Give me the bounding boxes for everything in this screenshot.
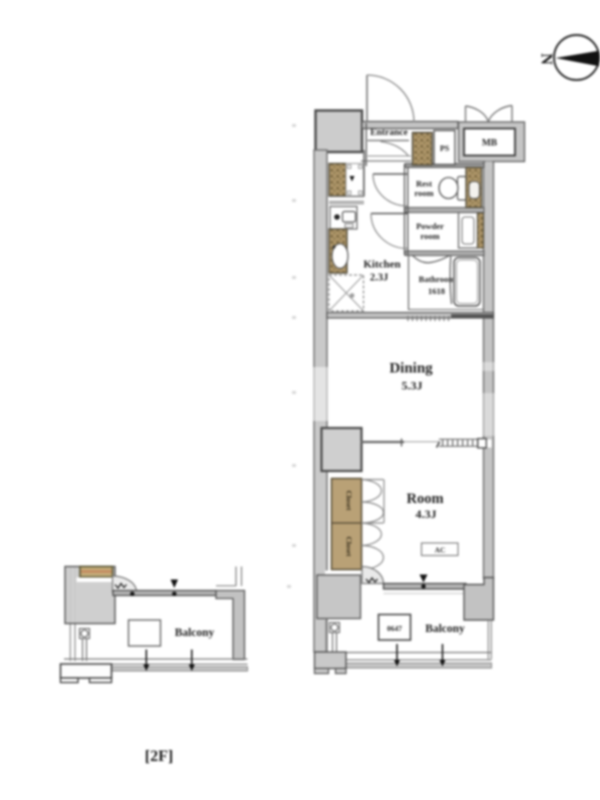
svg-text:5.3J: 5.3J (402, 379, 423, 393)
svg-text:4.3J: 4.3J (416, 507, 437, 521)
svg-text:1618: 1618 (428, 286, 445, 296)
svg-text:Dining: Dining (389, 361, 433, 377)
svg-text:Kitchen: Kitchen (363, 259, 400, 271)
svg-text:Rest: Rest (416, 179, 432, 189)
svg-text:room: room (420, 231, 439, 241)
svg-text:Room: Room (406, 491, 443, 507)
svg-text:Entrance: Entrance (370, 128, 407, 138)
svg-text:PS: PS (440, 144, 450, 153)
svg-text:room: room (414, 188, 433, 198)
svg-text:Closet: Closet (345, 491, 354, 511)
svg-text:[2F]: [2F] (145, 748, 173, 765)
svg-text:Powder: Powder (416, 221, 444, 231)
svg-text:MB: MB (482, 139, 498, 149)
svg-text:2.3J: 2.3J (370, 273, 388, 284)
svg-text:AC: AC (435, 546, 446, 555)
svg-text:※: ※ (349, 292, 355, 300)
svg-text:Closet: Closet (345, 537, 354, 557)
svg-text:Balcony: Balcony (425, 623, 465, 635)
svg-text:Balcony: Balcony (175, 627, 215, 639)
svg-text:N: N (537, 53, 554, 65)
svg-text:0647: 0647 (387, 624, 402, 633)
